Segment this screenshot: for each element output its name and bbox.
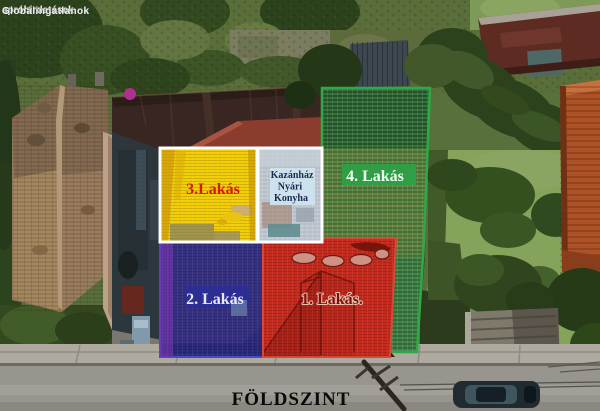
svg-text:Globálingatlanok: Globálingatlanok xyxy=(2,6,90,17)
svg-text:3.Lakás: 3.Lakás xyxy=(186,181,240,198)
svg-text:Konyha: Konyha xyxy=(274,193,308,204)
svg-text:FÖLDSZINT: FÖLDSZINT xyxy=(232,389,351,410)
svg-text:Kazánház: Kazánház xyxy=(271,170,314,181)
svg-text:4. Lakás: 4. Lakás xyxy=(346,168,404,185)
svg-text:2. Lakás: 2. Lakás xyxy=(186,291,244,308)
svg-text:Nyári: Nyári xyxy=(278,182,303,193)
svg-text:1. Lakás.: 1. Lakás. xyxy=(301,291,363,308)
